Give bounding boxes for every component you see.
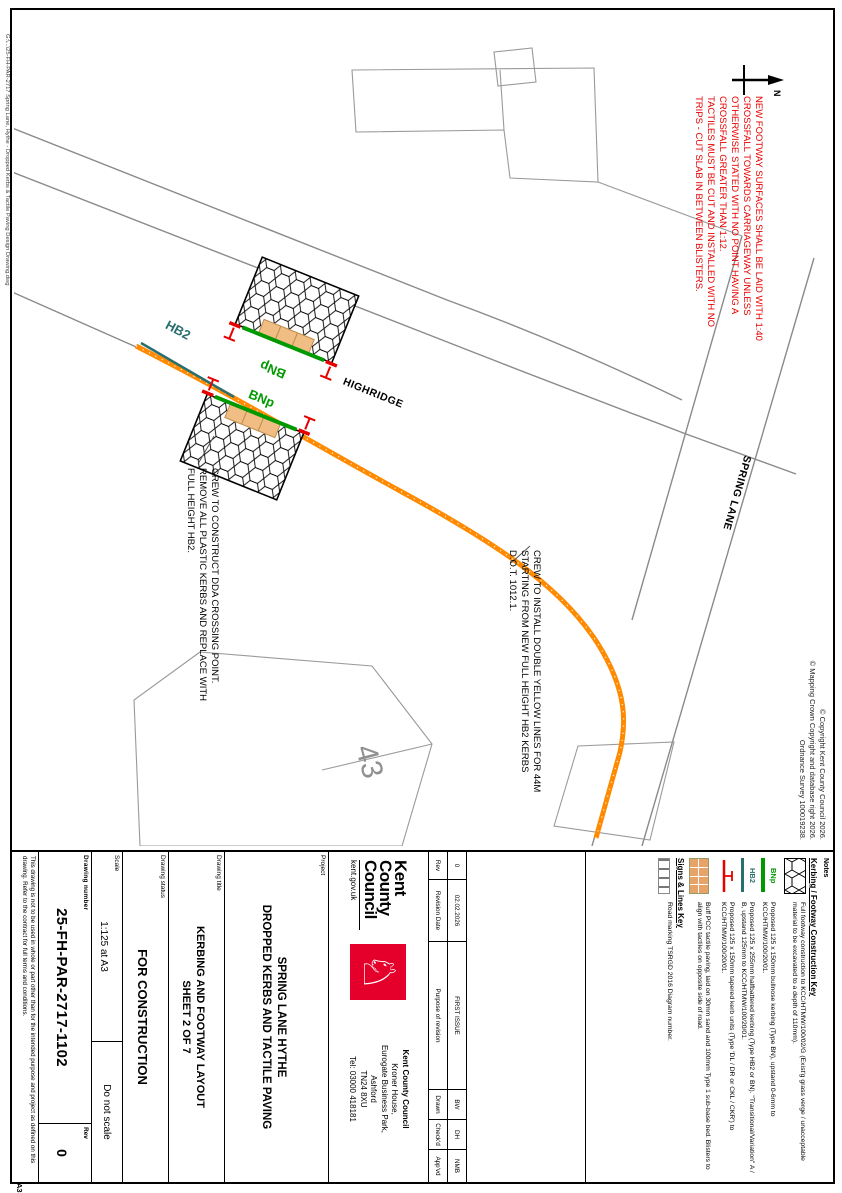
notes-heading: Notes bbox=[822, 858, 829, 1176]
project-line1: SPRING LANE HYTHE bbox=[274, 957, 289, 1078]
revision-rev: 0 bbox=[448, 852, 466, 880]
svg-text:CROSSFALL GREATER THAN 1:12.: CROSSFALL GREATER THAN 1:12. bbox=[717, 96, 728, 252]
svg-text:D.O.T. 1012.1.: D.O.T. 1012.1. bbox=[507, 550, 518, 611]
legend-item-bullnose-kerb: BNp Proposed 125 x 150mm bullnose kerbin… bbox=[758, 858, 776, 1176]
do-not-scale: Do not scale bbox=[102, 1084, 113, 1140]
scale-cell: Scale 1:125 at A3 bbox=[92, 852, 122, 1042]
drawing-status: FOR CONSTRUCTION bbox=[135, 949, 150, 1085]
revision-appvd: NMB bbox=[448, 1150, 466, 1182]
do-not-scale-cell: Do not scale bbox=[92, 1042, 122, 1182]
rev-cell: Rev 0 bbox=[39, 1124, 91, 1182]
svg-text:NEW FOOTWAY SURFACES SHALL BE: NEW FOOTWAY SURFACES SHALL BE LAID WITH … bbox=[753, 96, 764, 341]
revision-date: 02.02.2026 bbox=[448, 880, 466, 942]
drawing-title-line2: SHEET 2 OF 7 bbox=[180, 980, 194, 1053]
plot-file-stamp: G:\...\25-FH-PAR-2717 Spring Lane, Hythe… bbox=[4, 34, 10, 674]
road-marking-swatch bbox=[658, 858, 673, 898]
teal-kerb-swatch: HB2 bbox=[738, 858, 755, 898]
drawing-title-line1: KERBING AND FOOTWAY LAYOUT bbox=[194, 926, 208, 1108]
red-footway-note: NEW FOOTWAY SURFACES SHALL BE LAID WITH … bbox=[693, 96, 764, 341]
drawing-title-cell: Drawing title KERBING AND FOOTWAY LAYOUT… bbox=[168, 852, 224, 1182]
empty-revision-rows bbox=[466, 852, 585, 1182]
street-label-highridge: HIGHRIDGE bbox=[341, 376, 405, 411]
council-address: Kent County Council Kroner House, Euroga… bbox=[347, 1000, 410, 1178]
copyright-note: © Copyright Kent County Council 2026. © … bbox=[798, 661, 827, 840]
drawing-number-row: Drawing number 25-FH-PAR-2717-1102 Rev 0 bbox=[38, 852, 91, 1182]
revision-entry-row: 0 02.02.2026 FIRST ISSUE BW DH NMB bbox=[447, 852, 466, 1182]
rev-value: 0 bbox=[54, 1149, 70, 1157]
disclaimer-text: This drawing is not to be used in whole … bbox=[12, 852, 38, 1182]
svg-text:TRIPS - CUT SLAB IN BETWEEN BL: TRIPS - CUT SLAB IN BETWEEN BLISTERS. bbox=[693, 96, 704, 292]
green-kerb-swatch: BNp bbox=[758, 858, 776, 898]
revision-drawn: BW bbox=[448, 1090, 466, 1120]
drawing-number-cell: Drawing number 25-FH-PAR-2717-1102 bbox=[39, 852, 91, 1124]
double-yellow-note: CREW TO INSTALL DOUBLE YELLOW LINES FOR … bbox=[507, 550, 542, 792]
kcc-wordmark: Kent County Council kent.gov.uk bbox=[349, 856, 408, 944]
hex-footway-swatch bbox=[779, 858, 806, 898]
red-taper-swatch bbox=[714, 858, 735, 898]
drawing-status-cell: Drawing status FOR CONSTRUCTION bbox=[122, 852, 168, 1182]
svg-text:CROSSFALL TOWARDS CARRIAGEWAY: CROSSFALL TOWARDS CARRIAGEWAY UNLESS bbox=[741, 96, 752, 315]
hb2-label: HB2 bbox=[163, 317, 193, 342]
project-cell: Project SPRING LANE HYTHE DROPPED KERBS … bbox=[224, 852, 328, 1182]
hb2-kerb-line bbox=[141, 343, 234, 397]
council-logo-block: Kent County Council kent.gov.uk ♘ Kent C… bbox=[328, 852, 428, 1182]
drawing-number: 25-FH-PAR-2717-1102 bbox=[54, 908, 71, 1067]
legend-item-road-marking: Road marking TSRGD 2016 Diagram number. bbox=[658, 858, 673, 1176]
legend-panel: Notes Kerbing / Footway Construction Key… bbox=[585, 852, 833, 1182]
svg-text:OTHERWISE STATED WITH NO POINT: OTHERWISE STATED WITH NO POINT HAVING A bbox=[729, 96, 740, 315]
scale-row: Scale 1:125 at A3 Do not scale bbox=[91, 852, 122, 1182]
svg-text:© Copyright Kent County Counci: © Copyright Kent County Council 2026. bbox=[818, 709, 827, 840]
paper-size-label: A3 bbox=[15, 1183, 24, 1193]
svg-text:CREW TO CONSTRUCT DDA CROSSING: CREW TO CONSTRUCT DDA CROSSING POINT. bbox=[209, 468, 220, 683]
north-label: N bbox=[772, 90, 782, 97]
legend-item-tactile: Buff PCC tactile paving, laid on 30mm sa… bbox=[689, 858, 711, 1176]
drawing-sheet: 43 BNp bbox=[0, 0, 842, 1191]
svg-text:Ordnance Survey 100019238.: Ordnance Survey 100019238. bbox=[798, 740, 807, 840]
title-block: Notes Kerbing / Footway Construction Key… bbox=[12, 850, 833, 1182]
construct-crossing-note: CREW TO CONSTRUCT DDA CROSSING POINT. RE… bbox=[185, 468, 220, 701]
signs-key-title: Signs & Lines Key bbox=[676, 858, 685, 1176]
svg-text:FULL HEIGHT HB2.: FULL HEIGHT HB2. bbox=[185, 468, 196, 553]
kcc-url: kent.gov.uk bbox=[349, 860, 360, 930]
crossing-point-a: BNp bbox=[216, 255, 364, 399]
north-arrow-icon: N bbox=[732, 65, 784, 97]
svg-text:STARTING FROM NEW FULL HEIGHT: STARTING FROM NEW FULL HEIGHT HB2 KERBS bbox=[519, 550, 530, 772]
bnp-label-a: BNp bbox=[258, 358, 288, 382]
legend-item-taper-kerb: Proposed 125 x 150mm tapered kerb units … bbox=[714, 858, 735, 1176]
legend-item-halfbattered-kerb: HB2 Proposed 125 x 255mm halfbattered ke… bbox=[738, 858, 755, 1176]
revision-purpose: FIRST ISSUE bbox=[448, 942, 466, 1090]
revision-header-row: Rev Revision Date Purpose of revision Dr… bbox=[428, 852, 447, 1182]
svg-text:CREW TO INSTALL DOUBLE YELLOW: CREW TO INSTALL DOUBLE YELLOW LINES FOR … bbox=[531, 550, 542, 792]
svg-text:REMOVE ALL PLASTIC KERBS AND R: REMOVE ALL PLASTIC KERBS AND REPLACE WIT… bbox=[197, 468, 208, 701]
invicta-horse-icon: ♘ bbox=[351, 944, 407, 1000]
tactile-swatch bbox=[689, 858, 711, 898]
project-line2: DROPPED KERBS AND TACTILE PAVING bbox=[259, 905, 274, 1129]
svg-text:TACTILES MUST BE CUT AND INSTA: TACTILES MUST BE CUT AND INSTALLED WITH … bbox=[705, 96, 716, 327]
house-number-43: 43 bbox=[349, 741, 390, 782]
revision-checkd: DH bbox=[448, 1120, 466, 1150]
svg-text:© Mapping Crown Copyright and: © Mapping Crown Copyright and database r… bbox=[808, 661, 817, 840]
legend-item-footway: Full footway construction to KCC/HTMW/10… bbox=[779, 858, 806, 1176]
scale-value: 1:125 at A3 bbox=[99, 921, 116, 972]
construction-key-title: Kerbing / Footway Construction Key bbox=[809, 858, 818, 1176]
